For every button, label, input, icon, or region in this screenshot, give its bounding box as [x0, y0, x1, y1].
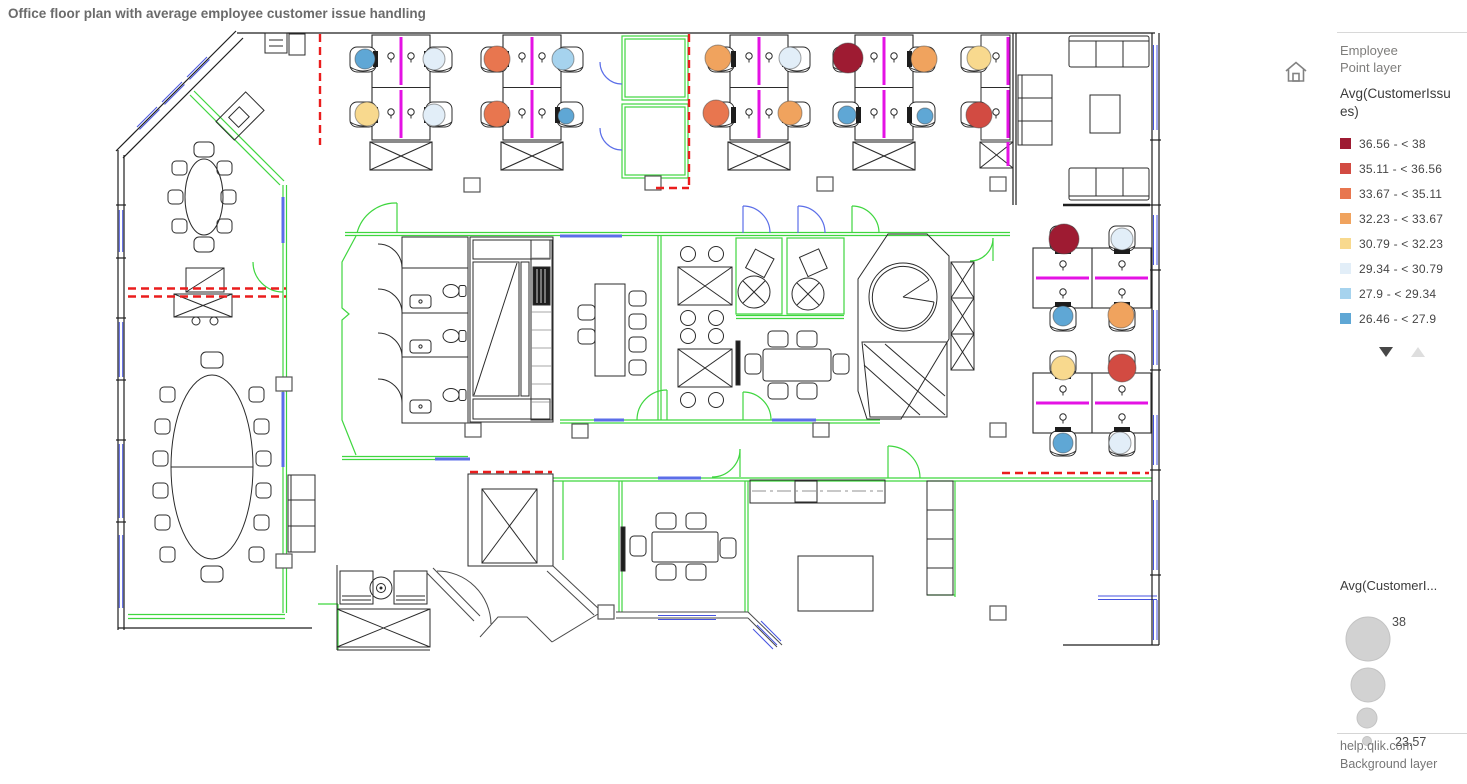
- size-legend-title: Avg(CustomerI...: [1340, 578, 1467, 593]
- furniture: [153, 33, 1149, 650]
- employee-point[interactable]: [705, 45, 731, 71]
- legend-classes: 36.56 - < 3835.11 - < 36.5633.67 - < 35.…: [1337, 131, 1467, 331]
- employee-point[interactable]: [1109, 432, 1131, 454]
- size-bubble-small: [1357, 708, 1377, 728]
- home-button[interactable]: [1279, 56, 1313, 90]
- column-markers: [276, 176, 1006, 620]
- employee-point[interactable]: [484, 101, 510, 127]
- legend-swatch: [1340, 138, 1351, 149]
- legend-swatch: [1340, 263, 1351, 274]
- legend-class-row[interactable]: 30.79 - < 32.23: [1337, 231, 1467, 256]
- employee-point[interactable]: [1108, 302, 1134, 328]
- employee-point[interactable]: [1108, 354, 1136, 382]
- home-icon: [1283, 59, 1309, 85]
- floor-plan-background: [0, 0, 1330, 784]
- triangle-down-icon[interactable]: [1379, 347, 1393, 357]
- employee-point[interactable]: [911, 46, 937, 72]
- legend-measure-title: Avg(CustomerIssues): [1340, 85, 1456, 121]
- legend-class-label: 27.9 - < 29.34: [1359, 287, 1436, 301]
- employee-point[interactable]: [355, 49, 375, 69]
- size-bubble-max: [1346, 617, 1390, 661]
- employee-point[interactable]: [833, 43, 863, 73]
- legend-class-label: 26.46 - < 27.9: [1359, 312, 1436, 326]
- legend-class-row[interactable]: 29.34 - < 30.79: [1337, 256, 1467, 281]
- legend-class-label: 35.11 - < 36.56: [1359, 162, 1442, 176]
- employee-point[interactable]: [778, 101, 802, 125]
- legend-class-label: 33.67 - < 35.11: [1359, 187, 1442, 201]
- employee-point[interactable]: [423, 48, 445, 70]
- legend-class-row[interactable]: 36.56 - < 38: [1337, 131, 1467, 156]
- legend-class-label: 29.34 - < 30.79: [1359, 262, 1443, 276]
- legend-class-row[interactable]: 27.9 - < 29.34: [1337, 281, 1467, 306]
- legend-divider: [1337, 733, 1467, 734]
- legend-class-row[interactable]: 35.11 - < 36.56: [1337, 156, 1467, 181]
- size-legend-max-label: 38: [1392, 615, 1406, 629]
- legend-layer-type: Point layer: [1340, 59, 1467, 76]
- color-legend: Employee Point layer Avg(CustomerIssues)…: [1337, 32, 1467, 357]
- employee-point[interactable]: [1053, 306, 1073, 326]
- employee-point[interactable]: [966, 102, 992, 128]
- employee-point[interactable]: [355, 102, 379, 126]
- employee-point[interactable]: [423, 104, 445, 126]
- employee-point[interactable]: [1111, 228, 1133, 250]
- employee-point[interactable]: [838, 106, 856, 124]
- employee-point[interactable]: [703, 100, 729, 126]
- legend-scroll: [1337, 347, 1467, 357]
- triangle-up-icon[interactable]: [1411, 347, 1425, 357]
- legend-swatch: [1340, 288, 1351, 299]
- employee-point[interactable]: [484, 46, 510, 72]
- background-layer-label: Background layer: [1340, 757, 1437, 771]
- legend-class-row[interactable]: 33.67 - < 35.11: [1337, 181, 1467, 206]
- outer-walls: [116, 31, 1161, 645]
- employee-point[interactable]: [552, 48, 574, 70]
- legend-class-label: 36.56 - < 38: [1359, 137, 1426, 151]
- size-bubble-large: [1351, 668, 1385, 702]
- legend-layer-name: Employee: [1340, 42, 1467, 59]
- blue-windows: [119, 45, 1157, 649]
- legend-swatch: [1340, 188, 1351, 199]
- qlik-map-visualization: Office floor plan with average employee …: [0, 0, 1467, 784]
- legend-class-row[interactable]: 32.23 - < 33.67: [1337, 206, 1467, 231]
- employee-point[interactable]: [779, 47, 801, 69]
- employee-point[interactable]: [967, 46, 991, 70]
- size-legend: Avg(CustomerI... 38 23.57: [1337, 578, 1467, 757]
- legend-swatch: [1340, 313, 1351, 324]
- legend-class-label: 30.79 - < 32.23: [1359, 237, 1443, 251]
- employee-point[interactable]: [1049, 224, 1079, 254]
- employee-point[interactable]: [917, 108, 933, 124]
- employee-point[interactable]: [558, 108, 574, 124]
- legend-class-label: 32.23 - < 33.67: [1359, 212, 1443, 226]
- employee-point[interactable]: [1053, 433, 1073, 453]
- legend-swatch: [1340, 238, 1351, 249]
- corridor-lines: [427, 258, 883, 647]
- legend-swatch: [1340, 163, 1351, 174]
- size-legend-bubbles: 38: [1337, 593, 1467, 733]
- legend-class-row[interactable]: 26.46 - < 27.9: [1337, 306, 1467, 331]
- employee-point[interactable]: [1051, 356, 1075, 380]
- legend-swatch: [1340, 213, 1351, 224]
- attribution-link[interactable]: help.qlik.com: [1340, 739, 1413, 753]
